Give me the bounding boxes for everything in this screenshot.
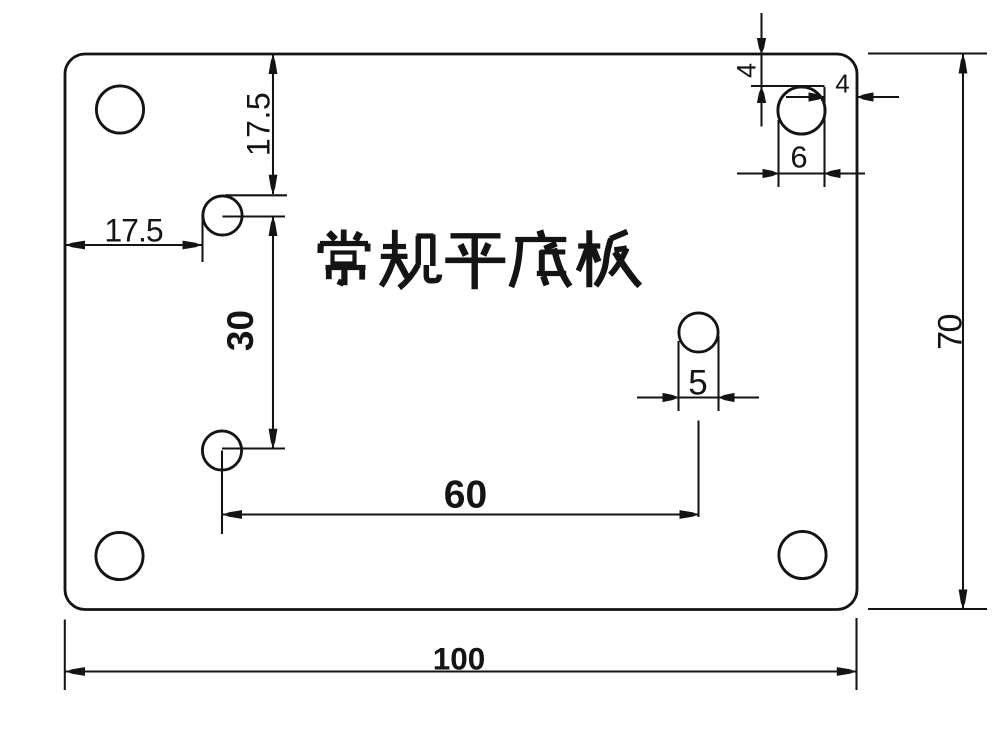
svg-text:30: 30 [220, 310, 261, 351]
svg-text:4: 4 [835, 69, 849, 99]
svg-text:17.5: 17.5 [241, 92, 277, 156]
svg-text:6: 6 [790, 140, 807, 175]
svg-text:17.5: 17.5 [104, 213, 162, 249]
svg-text:100: 100 [433, 641, 486, 677]
svg-text:70: 70 [932, 315, 970, 350]
svg-text:60: 60 [444, 474, 487, 517]
svg-text:4: 4 [732, 63, 762, 78]
svg-text:5: 5 [688, 364, 707, 403]
